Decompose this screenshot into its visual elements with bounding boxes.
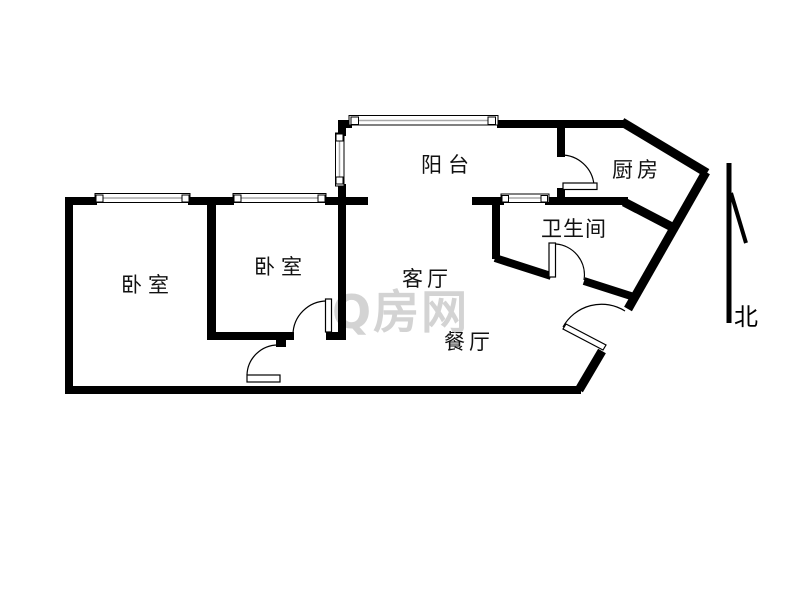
label-bedroom1: 卧室: [121, 269, 175, 299]
label-living: 客厅: [402, 263, 452, 293]
wall-kitchen-bottom-diagonal: [624, 202, 672, 227]
label-balcony: 阳台: [421, 149, 475, 179]
floor-plan-drawing: [0, 0, 800, 600]
walls: [65, 120, 707, 394]
window-balcony-left: [336, 133, 345, 186]
label-kitchen: 厨房: [612, 154, 662, 184]
window-balcony-top: [349, 116, 498, 126]
door-entry: [563, 304, 625, 350]
door-kitchen: [561, 155, 597, 190]
wall-top-seg3: [325, 197, 368, 205]
window-bathroom: [501, 194, 549, 203]
door-bedroom2: [293, 299, 332, 335]
label-bathroom: 卫生间: [541, 213, 607, 243]
label-north: 北: [734, 297, 758, 332]
wall-bathroom-left: [492, 203, 500, 259]
window-bedroom2: [233, 194, 326, 203]
wall-balcony-kitchen-divider: [557, 126, 565, 157]
door-hallway: [247, 345, 280, 382]
windows: [95, 116, 549, 203]
wall-balcony-left-bottom: [338, 184, 346, 205]
wall-bathroom-top-right: [545, 197, 628, 205]
wall-hall-door-stub: [276, 340, 286, 347]
wall-top-seg1: [65, 197, 97, 205]
wall-right-diagonal-upper: [628, 172, 706, 309]
wall-between-bedrooms: [207, 197, 216, 340]
floor-plan-canvas: Q房网: [0, 0, 800, 600]
wall-bedroom2-right: [338, 197, 346, 340]
wall-bedroom2-bottom-left: [207, 332, 294, 340]
door-bathroom: [549, 243, 584, 280]
label-dining: 餐厅: [444, 326, 494, 356]
wall-bottom: [65, 386, 581, 394]
wall-bathroom-bottom-left: [495, 258, 551, 276]
label-bedroom2: 卧室: [254, 251, 308, 281]
wall-right-diagonal-lower: [579, 351, 602, 390]
wall-bathroom-bottom-right: [584, 281, 634, 297]
window-bedroom1: [95, 194, 190, 203]
wall-left: [65, 197, 73, 394]
